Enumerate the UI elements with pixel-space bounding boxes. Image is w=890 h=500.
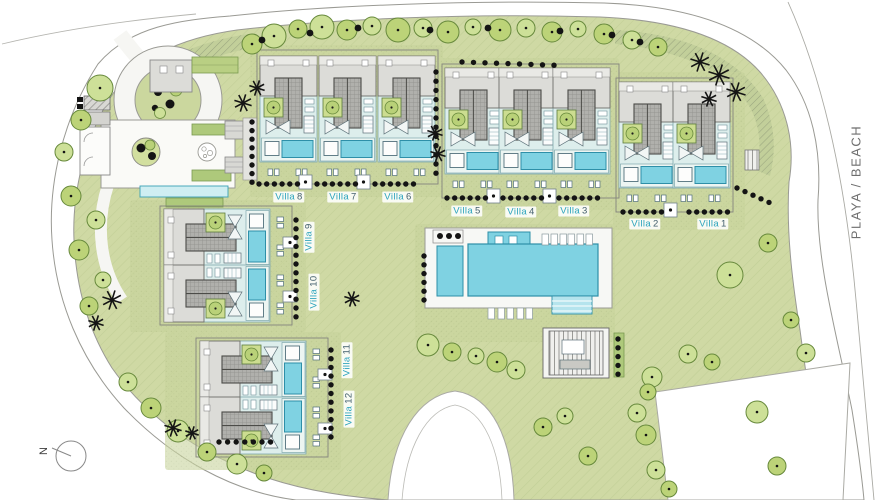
hedge-bush (225, 439, 230, 444)
entry-door-dot (492, 194, 495, 197)
gatehouse-roof (150, 60, 192, 92)
hedge-bush (345, 181, 350, 186)
villa-unit (260, 56, 317, 176)
tree-center-dot (542, 426, 545, 429)
hedge-bush (758, 196, 763, 201)
site-plan: Villa1 Villa2 Villa3 Villa4 Villa5 Villa… (0, 0, 890, 500)
hedge-bush (328, 373, 333, 378)
hedge-bush (328, 391, 333, 396)
hedge-bush (272, 181, 277, 186)
tree-center-dot (776, 465, 779, 468)
entry-door-dot (288, 241, 291, 244)
tree-center-dot (447, 31, 450, 34)
hedge-bush (531, 195, 536, 200)
sun-lounger (498, 308, 505, 319)
tree-center-dot (451, 351, 454, 354)
hedge-bush (293, 226, 298, 231)
hedge-bush (595, 195, 600, 200)
villa-unit (200, 397, 320, 454)
hedge-bush (467, 195, 472, 200)
tree-center-dot (371, 25, 374, 28)
hedge-bush (328, 400, 333, 405)
hedge-bush (421, 297, 426, 302)
tree-center-dot (475, 355, 478, 358)
hedge-bush (421, 253, 426, 258)
tree-center-dot (756, 411, 759, 414)
hedge-bush (659, 209, 664, 214)
tree-center-dot (687, 353, 690, 356)
tree-center-dot (603, 33, 606, 36)
hedge-bush (459, 59, 464, 64)
tree-center-dot (496, 361, 499, 364)
tree-center-dot (321, 26, 324, 29)
tree-center-dot (645, 434, 648, 437)
hedge-bush (643, 209, 648, 214)
hedge-bush (460, 195, 465, 200)
hedge-bush (750, 193, 755, 198)
sun-lounger (551, 234, 558, 245)
palm-center (350, 297, 354, 301)
palm-center (707, 97, 711, 101)
tree-center-dot (551, 31, 554, 34)
dark-shrub (259, 37, 266, 44)
hedge-bush (725, 209, 730, 214)
hedge-bush (264, 181, 269, 186)
tree-center-dot (99, 87, 102, 90)
hedge-bush (328, 347, 333, 352)
tree-center-dot (636, 412, 639, 415)
villa-unit (200, 341, 320, 398)
tree-center-dot (729, 274, 732, 277)
sun-lounger (517, 308, 524, 319)
tree-center-dot (102, 279, 105, 282)
hedge-bush (328, 365, 333, 370)
hedge-bush (328, 382, 333, 387)
palm-center (171, 426, 175, 430)
site-plan-drawing (0, 0, 890, 500)
palm-center (734, 90, 738, 94)
tree-center-dot (587, 455, 590, 458)
hedge-bush (249, 180, 254, 185)
hedge-bush (293, 217, 298, 222)
hedge-bush (483, 195, 488, 200)
service-rooms (80, 127, 110, 175)
hedge-bush (615, 363, 620, 368)
hedge-bush (328, 408, 333, 413)
tree-center-dot (273, 35, 276, 38)
hedge-bush (421, 271, 426, 276)
hedge-bush (353, 181, 358, 186)
hedge-bush (256, 181, 261, 186)
tree-center-dot (251, 43, 254, 46)
hedge-bush (636, 209, 641, 214)
villa-unit (378, 56, 435, 176)
hedge-bush (620, 209, 625, 214)
hedge-bush (249, 162, 254, 167)
hedge-bush (717, 209, 722, 214)
tree-center-dot (668, 488, 671, 491)
hedge-bush (251, 439, 256, 444)
hedge-bush (523, 195, 528, 200)
hedge-bush (328, 417, 333, 422)
hedge-bush (651, 209, 656, 214)
tree-center-dot (206, 451, 209, 454)
hedge-bush (403, 181, 408, 186)
hedge-bush (293, 279, 298, 284)
tree-center-dot (297, 28, 300, 31)
hedge-bush (293, 305, 298, 310)
hedge-bush (433, 106, 438, 111)
hedge-bush (249, 119, 254, 124)
entry-door-dot (304, 180, 307, 183)
villa-unit (164, 209, 284, 266)
hedge-bush (293, 253, 298, 258)
hedge-bush (433, 88, 438, 93)
hedge-bush (216, 439, 221, 444)
main-pool (468, 244, 598, 296)
tree-center-dot (525, 27, 528, 30)
hedge-bush (452, 195, 457, 200)
pebble-circle (198, 143, 216, 161)
sun-lounger (507, 308, 514, 319)
tree-center-dot (564, 415, 567, 418)
hedge-bush (551, 62, 556, 67)
villa-unit (499, 68, 556, 188)
dark-shrub (355, 25, 362, 32)
hedge-bush (337, 181, 342, 186)
hedge-bush (500, 195, 505, 200)
hedge-bush (508, 195, 513, 200)
hedge-bush (279, 181, 284, 186)
hedge-bush (287, 181, 292, 186)
tree-center-dot (127, 381, 130, 384)
tree-center-dot (78, 249, 81, 252)
entry-door-dot (548, 194, 551, 197)
hedge-bush (249, 137, 254, 142)
hedge-bush (694, 209, 699, 214)
villa-unit (319, 56, 376, 176)
hedge-bush (268, 439, 273, 444)
hedge-bush (242, 439, 247, 444)
dark-shrub (609, 32, 616, 39)
tree-center-dot (651, 376, 654, 379)
palm-center (717, 73, 721, 77)
hedge-bush (411, 181, 416, 186)
sun-lounger (488, 308, 495, 319)
dark-shrub (427, 27, 434, 34)
hedge-bush (482, 60, 487, 65)
hedge-bush (433, 161, 438, 166)
hedge-bush (556, 195, 561, 200)
hedge-bush (293, 244, 298, 249)
hedge-bush (686, 209, 691, 214)
hedge-bush (475, 195, 480, 200)
villa-unit (619, 82, 676, 202)
hedge-bush (516, 195, 521, 200)
hedge-bush (249, 171, 254, 176)
villa-unit (164, 265, 284, 322)
lap-pool (140, 186, 228, 197)
hedge-bush (395, 181, 400, 186)
villa-unit (445, 68, 502, 188)
hedge-bush (421, 280, 426, 285)
tree-center-dot (657, 46, 660, 49)
palm-center (190, 431, 194, 435)
tree-center-dot (515, 369, 518, 372)
sun-lounger (560, 234, 567, 245)
hedge-bush (328, 434, 333, 439)
hedge-bush (249, 145, 254, 150)
hedge-bush (709, 209, 714, 214)
hedge-bush (433, 69, 438, 74)
tree-center-dot (346, 29, 349, 32)
hedge-bush (328, 356, 333, 361)
palm-center (255, 86, 259, 90)
hedge-bush (572, 195, 577, 200)
sun-lounger (568, 234, 575, 245)
sun-lounger (577, 234, 584, 245)
tree-center-dot (767, 242, 770, 245)
dark-shrub (557, 28, 564, 35)
hedge-bush (564, 195, 569, 200)
hedge-bush (615, 354, 620, 359)
hedge-bush (615, 372, 620, 377)
hedge-bush (421, 289, 426, 294)
tree-center-dot (655, 469, 658, 472)
hedge-bush (734, 185, 739, 190)
dark-shrub (307, 30, 314, 37)
sun-lounger (586, 234, 593, 245)
dark-shrub (485, 25, 492, 32)
hedge-bush (494, 61, 499, 66)
hedge-bush (433, 79, 438, 84)
hedge-bush (628, 209, 633, 214)
hedge-bush (615, 345, 620, 350)
entry-door-dot (323, 373, 326, 376)
tree-center-dot (647, 391, 650, 394)
hedge-bush (322, 181, 327, 186)
hedge-bush (249, 128, 254, 133)
tree-center-dot (63, 151, 66, 154)
hedge-bush (293, 261, 298, 266)
palm-center (94, 321, 98, 325)
villa-unit (673, 82, 730, 202)
hedge-bush (433, 171, 438, 176)
tree-center-dot (631, 39, 634, 42)
tree-center-dot (236, 463, 239, 466)
entry-door-dot (288, 295, 291, 298)
hedge-bush (293, 270, 298, 275)
hedge-bush (444, 195, 449, 200)
tree-center-dot (427, 344, 430, 347)
villa-unit (553, 68, 610, 188)
hedge-bush (517, 61, 522, 66)
hedge-bush (380, 181, 385, 186)
palm-center (110, 298, 114, 302)
hedge-bush (249, 154, 254, 159)
hedge-bush (328, 426, 333, 431)
hedge-bush (766, 200, 771, 205)
hedge-bush (587, 195, 592, 200)
kids-pool (437, 246, 463, 296)
hedge-bush (293, 297, 298, 302)
hedge-bush (293, 288, 298, 293)
tree-center-dot (150, 407, 153, 410)
hedge-bush (433, 115, 438, 120)
hedge-bush (615, 336, 620, 341)
north-arrow (52, 441, 86, 471)
entry-door-dot (362, 180, 365, 183)
hedge-bush (259, 439, 264, 444)
tree-center-dot (397, 29, 400, 32)
tree-center-dot (711, 361, 714, 364)
hedge-bush (234, 439, 239, 444)
hedge-bush (293, 314, 298, 319)
entry-door-dot (323, 427, 326, 430)
hedge-bush (295, 181, 300, 186)
dark-shrub (637, 39, 644, 46)
sun-lounger (526, 308, 533, 319)
tree-center-dot (422, 27, 425, 30)
tree-center-dot (88, 305, 91, 308)
hedge-bush (433, 97, 438, 102)
palm-center (698, 60, 702, 64)
hedge-bush (421, 262, 426, 267)
hedge-bush (539, 195, 544, 200)
hedge-bush (372, 181, 377, 186)
garden-structure (745, 150, 759, 170)
palm-center (241, 101, 245, 105)
tree-center-dot (95, 219, 98, 222)
tree-center-dot (499, 29, 502, 32)
tree-center-dot (70, 195, 73, 198)
tree-center-dot (577, 28, 580, 31)
hedge-bush (388, 181, 393, 186)
hedge-bush (742, 189, 747, 194)
hedge-bush (471, 60, 476, 65)
palm-center (436, 152, 440, 156)
hedge-bush (293, 235, 298, 240)
tree-center-dot (472, 26, 475, 29)
hedge-bush (702, 209, 707, 214)
hedge-bush (579, 195, 584, 200)
entry-door-dot (669, 208, 672, 211)
palm-center (433, 131, 437, 135)
tree-center-dot (263, 472, 266, 475)
hedge-bush (528, 62, 533, 67)
tree-center-dot (790, 319, 793, 322)
tree-center-dot (80, 119, 83, 122)
hedge-bush (505, 61, 510, 66)
tree-center-dot (805, 352, 808, 355)
hedge-bush (314, 181, 319, 186)
sun-lounger (542, 234, 549, 245)
hedge-bush (540, 62, 545, 67)
hedge-bush (330, 181, 335, 186)
